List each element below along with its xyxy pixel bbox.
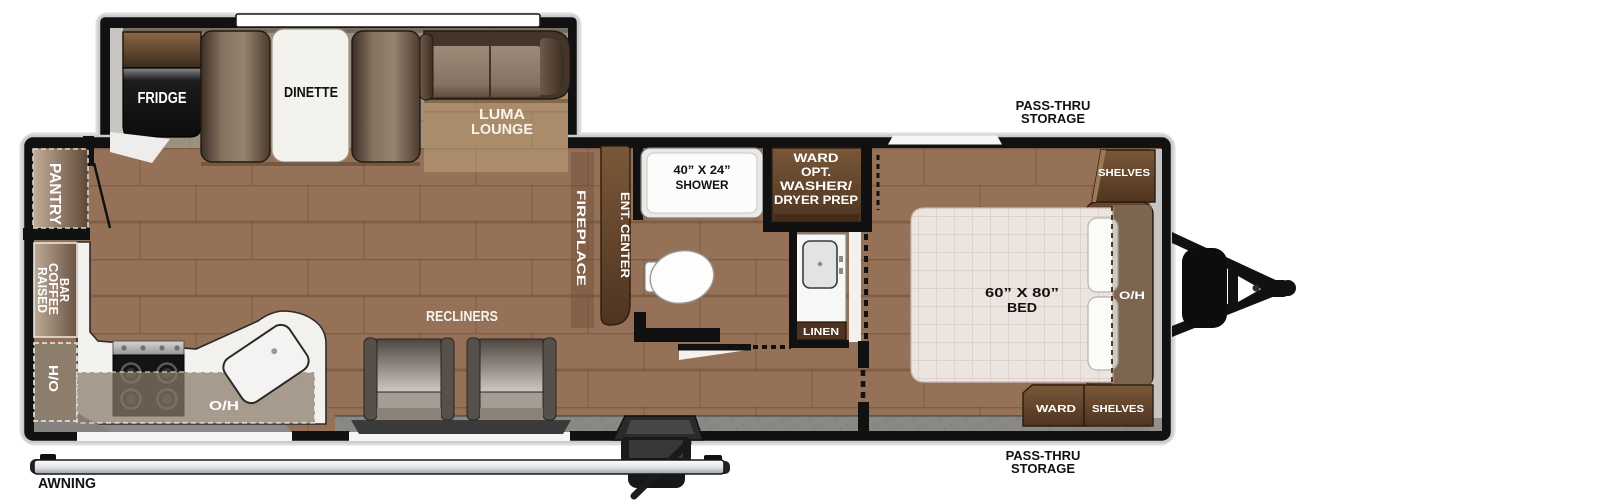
svg-text:WARD: WARD [1036, 403, 1077, 415]
svg-text:60” X 80”: 60” X 80” [985, 286, 1059, 300]
svg-text:LINEN: LINEN [803, 327, 839, 338]
svg-text:WARD: WARD [794, 153, 839, 165]
svg-text:AWNING: AWNING [38, 476, 96, 492]
svg-text:40” X 24”: 40” X 24” [674, 165, 731, 177]
svg-text:WASHER/: WASHER/ [780, 181, 853, 193]
svg-text:ENT. CENTER: ENT. CENTER [618, 192, 630, 279]
svg-text:BED: BED [1007, 301, 1037, 315]
svg-text:SHOWER: SHOWER [676, 180, 730, 192]
svg-text:FIREPLACE: FIREPLACE [574, 190, 586, 286]
svg-text:BAR: BAR [57, 278, 71, 302]
svg-text:LOUNGE: LOUNGE [471, 122, 533, 138]
svg-text:STORAGE: STORAGE [1011, 461, 1075, 476]
svg-text:SHELVES: SHELVES [1098, 167, 1150, 179]
svg-text:PANTRY: PANTRY [46, 163, 63, 225]
svg-text:FRIDGE: FRIDGE [138, 90, 187, 107]
svg-text:OPT.: OPT. [801, 167, 831, 179]
svg-text:O/H: O/H [209, 398, 239, 413]
svg-text:RECLINERS: RECLINERS [426, 309, 498, 325]
svg-text:SHELVES: SHELVES [1092, 403, 1144, 415]
svg-text:DRYER PREP: DRYER PREP [774, 195, 858, 207]
svg-text:LUMA: LUMA [479, 107, 526, 123]
svg-text:O/H: O/H [46, 365, 61, 392]
svg-text:O/H: O/H [1119, 290, 1145, 302]
svg-text:DINETTE: DINETTE [284, 84, 338, 101]
svg-text:STORAGE: STORAGE [1021, 111, 1085, 126]
